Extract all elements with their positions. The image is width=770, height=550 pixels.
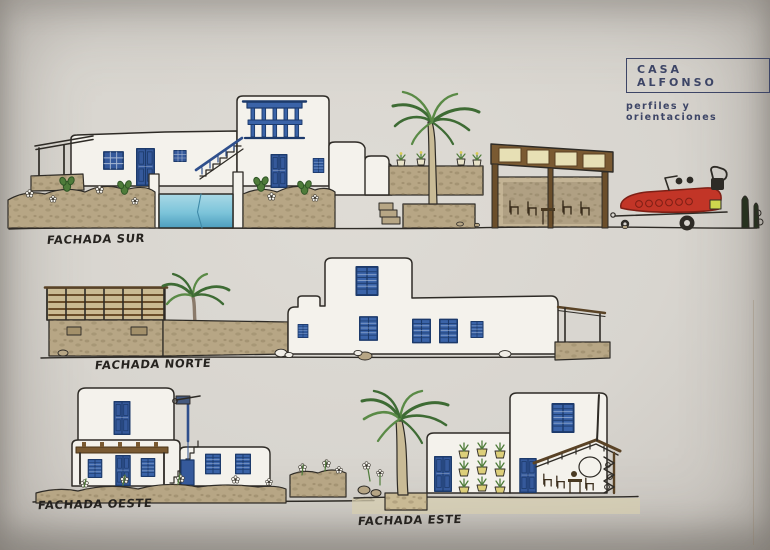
main-house-east <box>510 393 607 493</box>
wing-window-1 <box>206 454 221 474</box>
pergola-back-wall <box>45 288 167 357</box>
wall-plant-pots <box>397 151 481 166</box>
tower-window-north <box>356 267 377 295</box>
boat-windshield-figures <box>665 176 693 190</box>
boat-on-trailer <box>611 167 727 231</box>
window-4 <box>440 319 457 342</box>
main-house-north <box>275 258 558 360</box>
fachada-oeste-label: FACHADA OESTE <box>37 496 153 512</box>
sketch-paper: CASA ALFONSO perfiles y orientaciones <box>0 0 770 550</box>
garden-wall-east <box>427 433 510 493</box>
dining-pergola <box>491 144 613 228</box>
upper-window-east <box>552 404 573 432</box>
upper-balcony-door <box>114 402 130 435</box>
small-window <box>174 151 186 162</box>
side-awning <box>555 307 610 360</box>
built-in-bench <box>579 457 601 477</box>
garden-wall-north <box>163 320 288 356</box>
fachada-sur-drawing <box>5 82 765 247</box>
window-2 <box>360 317 377 340</box>
tower-door <box>271 155 287 188</box>
fachada-este-label: FACHADA ESTE <box>357 512 463 528</box>
porch-posts <box>39 145 64 179</box>
palm-trunk <box>428 122 437 204</box>
fachada-oeste-drawing <box>28 383 378 508</box>
window-5 <box>471 322 483 338</box>
cactus-figures <box>742 196 763 228</box>
fachada-norte-label: FACHADA NORTE <box>94 356 212 372</box>
palm-tree-north <box>163 274 229 322</box>
lower-window-1 <box>88 460 101 478</box>
main-house-west <box>72 388 270 486</box>
fachada-norte-drawing <box>35 250 635 370</box>
roof-pergola <box>243 102 306 139</box>
stern-panel <box>710 200 721 209</box>
wall-door <box>435 457 452 492</box>
lower-window-2 <box>141 459 154 477</box>
lattice-window <box>104 152 123 169</box>
palm-tree-south <box>393 92 479 228</box>
window-3 <box>413 319 430 342</box>
garden-steps <box>379 203 400 224</box>
fachada-sur-label: FACHADA SUR <box>46 231 146 247</box>
stacked-cactus-pots <box>459 441 505 493</box>
rocks-and-flowers <box>358 462 383 497</box>
wing-window-2 <box>236 454 251 474</box>
paper-crease <box>753 300 754 545</box>
window-1 <box>298 324 308 337</box>
palm-fronds <box>393 92 479 144</box>
palm-trunk <box>396 421 408 495</box>
boat-crane-motor <box>711 167 727 190</box>
tower-window <box>313 158 324 172</box>
